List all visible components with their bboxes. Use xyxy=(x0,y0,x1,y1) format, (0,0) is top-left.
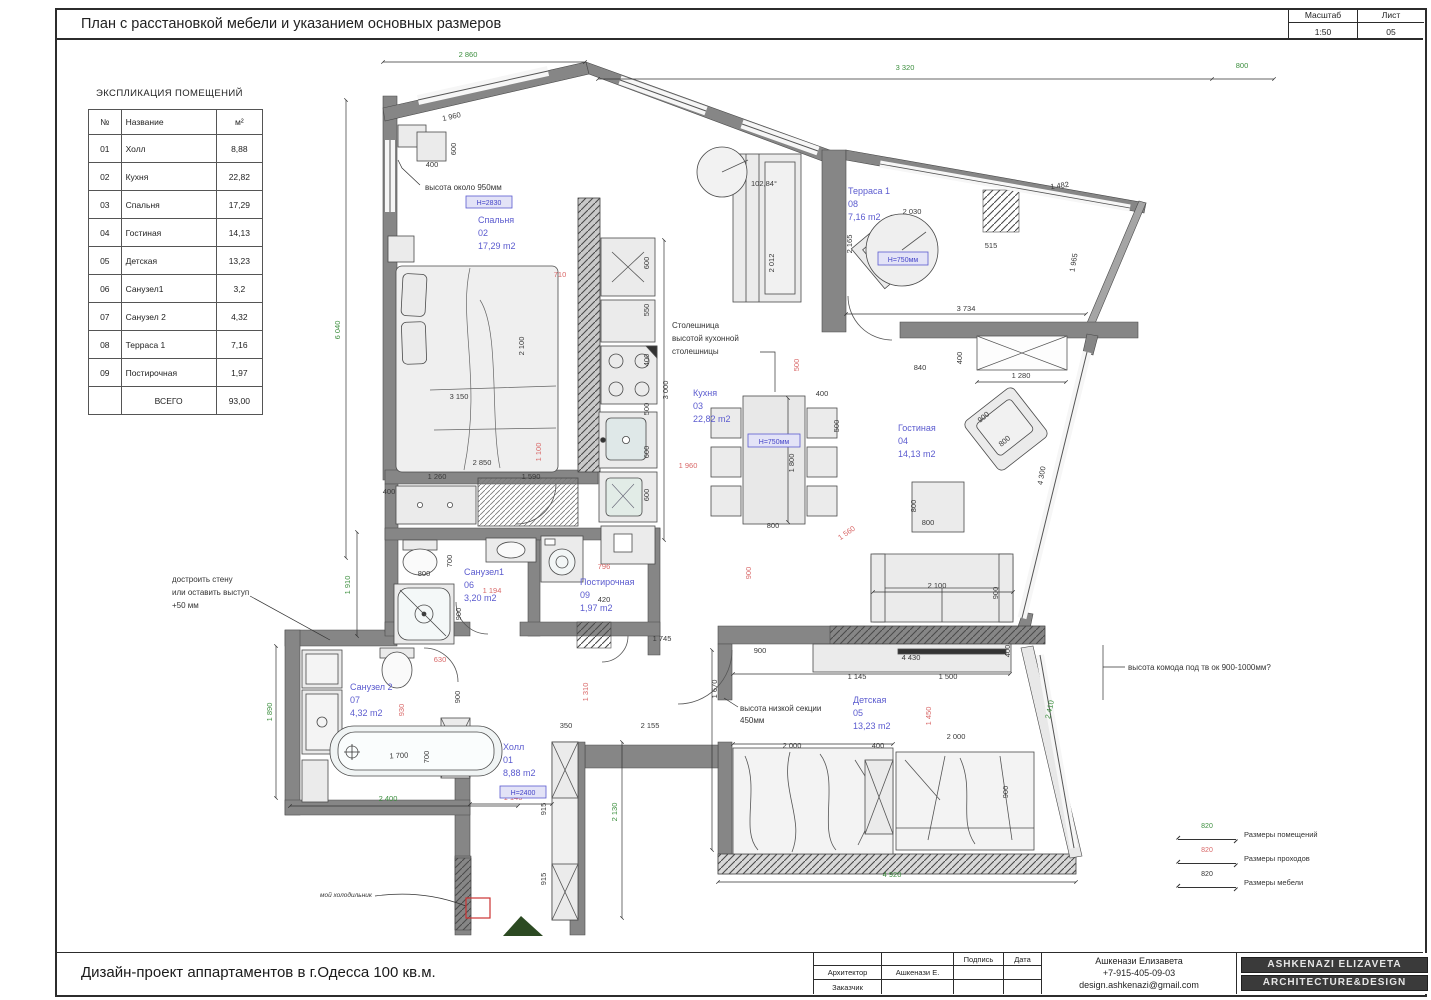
total-value: 93,00 xyxy=(216,387,262,415)
dimension-label: 6 040 xyxy=(333,321,342,340)
room-number: 08 xyxy=(89,331,122,359)
drawing-sheet: 2 8603 3208006 0401 9101 8902 4002 1304 … xyxy=(0,0,1431,1000)
col-name: Название xyxy=(121,110,216,135)
svg-text:8,88 m2: 8,88 m2 xyxy=(503,768,536,778)
sheet-title: План с расстановкой мебели и указанием о… xyxy=(81,16,501,32)
room-name: Терраса 1 xyxy=(121,331,216,359)
room-name: Детская xyxy=(121,247,216,275)
children-furniture xyxy=(733,748,1034,854)
svg-text:17,29 m2: 17,29 m2 xyxy=(478,241,516,251)
dimension-label: 400 xyxy=(955,352,964,365)
dimension-label: 2 030 xyxy=(903,207,922,216)
table-row: 05 Детская 13,23 xyxy=(89,247,263,275)
dimension-label: 800 xyxy=(418,569,431,578)
table-row: 07 Санузел 2 4,32 xyxy=(89,303,263,331)
table-row: 01 Холл 8,88 xyxy=(89,135,263,163)
dimension-label: 1 260 xyxy=(428,472,447,481)
dimension-label: 500 xyxy=(792,359,801,372)
dimension-label: 4 920 xyxy=(883,870,902,879)
svg-text:09: 09 xyxy=(580,590,590,600)
room-label-terrace: Терраса 1 08 7,16 m2 xyxy=(848,186,890,222)
dimension-label: 630 xyxy=(434,655,447,664)
annotation-tv: высота комода под тв ок 900-1000мм? xyxy=(1128,663,1271,672)
dimension-label: 700 xyxy=(422,751,431,764)
dimension-label: 900 xyxy=(453,691,462,704)
svg-text:Санузел 2: Санузел 2 xyxy=(350,682,393,692)
dimension-label: 1 450 xyxy=(924,707,933,726)
svg-text:08: 08 xyxy=(848,199,858,209)
svg-text:Терраса 1: Терраса 1 xyxy=(848,186,890,196)
dimension-label: 350 xyxy=(560,721,573,730)
dimension-label: 1 745 xyxy=(653,634,672,643)
project-title: Дизайн-проект аппартаментов в г.Одесса 1… xyxy=(81,964,436,981)
table-row: 09 Постирочная 1,97 xyxy=(89,359,263,387)
annotation-countertop: Столешница высотой кухонной столешницы xyxy=(672,321,741,356)
svg-text:Н=2400: Н=2400 xyxy=(511,790,536,797)
room-number: 02 xyxy=(89,163,122,191)
dimension-label: 3 000 xyxy=(661,381,670,400)
dimension-label: 2 400 xyxy=(379,794,398,803)
legend-line-green: 820 xyxy=(1178,828,1236,840)
room-label-living: Гостиная 04 14,13 m2 xyxy=(898,423,936,459)
dimension-label: 2 100 xyxy=(517,337,526,356)
dimension-label: 1 560 xyxy=(836,524,857,542)
explication-panel: ЭКСПЛИКАЦИЯ ПОМЕЩЕНИЙ № Название м² 01 Х… xyxy=(88,88,273,415)
room-label-bedroom: Н=2830 Спальня 02 17,29 m2 xyxy=(466,196,516,251)
dimension-label: 500 xyxy=(642,403,651,416)
scale-box: Масштаб Лист 1:50 05 xyxy=(1288,8,1423,40)
annotation-fridge: мой холодильник xyxy=(320,891,373,899)
room-label-bath1: Санузел1 06 3,20 m2 xyxy=(464,567,504,603)
date-label: Дата xyxy=(1004,953,1042,966)
terrace-furniture xyxy=(851,214,938,289)
col-number: № xyxy=(89,110,122,135)
scale-value: 1:50 xyxy=(1289,23,1357,40)
table-row: 04 Гостиная 14,13 xyxy=(89,219,263,247)
room-area: 8,88 xyxy=(216,135,262,163)
svg-text:Постирочная: Постирочная xyxy=(580,577,635,587)
dimension-label: 4 300 xyxy=(1035,466,1047,486)
room-number: 09 xyxy=(89,359,122,387)
dimension-label: 840 xyxy=(914,363,927,372)
dimension-label: 1 280 xyxy=(1012,371,1031,380)
dimension-label: 2 130 xyxy=(610,803,619,822)
room-area: 3,2 xyxy=(216,275,262,303)
room-name: Санузел 2 xyxy=(121,303,216,331)
contact-name: Ашкенази Елизавета xyxy=(1042,955,1236,967)
room-area: 17,29 xyxy=(216,191,262,219)
room-number: 04 xyxy=(89,219,122,247)
table-row: 03 Спальня 17,29 xyxy=(89,191,263,219)
svg-text:03: 03 xyxy=(693,401,703,411)
dimension-label: 3 734 xyxy=(957,304,976,313)
annotation-low-section: высота низкой секции 450мм xyxy=(740,704,824,725)
dimension-label: 900 xyxy=(1001,786,1010,799)
explication-table: № Название м² 01 Холл 8,88 02 Кухня xyxy=(88,109,263,415)
svg-text:01: 01 xyxy=(503,755,513,765)
table-total-row: ВСЕГО 93,00 xyxy=(89,387,263,415)
svg-text:1,97 m2: 1,97 m2 xyxy=(580,603,613,613)
svg-text:Н=750мм: Н=750мм xyxy=(759,439,790,446)
room-area: 13,23 xyxy=(216,247,262,275)
svg-text:3,20 m2: 3,20 m2 xyxy=(464,593,497,603)
svg-text:Н=750мм: Н=750мм xyxy=(888,257,919,264)
dimension-label: 1 700 xyxy=(389,751,408,761)
room-area: 1,97 xyxy=(216,359,262,387)
room-area: 4,32 xyxy=(216,303,262,331)
dimension-label: 400 xyxy=(872,741,885,750)
sheet-number: 05 xyxy=(1357,23,1424,40)
svg-text:05: 05 xyxy=(853,708,863,718)
room-number: 01 xyxy=(89,135,122,163)
sheet-label: Лист xyxy=(1357,8,1424,23)
scale-label: Масштаб xyxy=(1289,8,1357,23)
dimension-label: 550 xyxy=(642,304,651,317)
room-name: Спальня xyxy=(121,191,216,219)
dimension-label: 600 xyxy=(449,143,458,156)
dimension-label: 900 xyxy=(991,587,1000,600)
dimension-label: 1 310 xyxy=(581,683,590,702)
dimension-label: 3 320 xyxy=(896,63,915,72)
room-number: 03 xyxy=(89,191,122,219)
room-label-kitchen: Кухня 03 22,82 m2 xyxy=(693,388,731,424)
room-name: Гостиная xyxy=(121,219,216,247)
dimension-label: 400 xyxy=(383,487,396,496)
dimension-label: 1 960 xyxy=(441,110,461,123)
dimension-label: 1 910 xyxy=(343,576,352,595)
svg-text:7,16 m2: 7,16 m2 xyxy=(848,212,881,222)
dimension-label: 2 100 xyxy=(928,581,947,590)
explication-heading: ЭКСПЛИКАЦИЯ ПОМЕЩЕНИЙ xyxy=(96,88,273,99)
svg-text:13,23 m2: 13,23 m2 xyxy=(853,721,891,731)
svg-text:Санузел1: Санузел1 xyxy=(464,567,504,577)
contact-info: Ашкенази Елизавета +7-915-405-09-03 desi… xyxy=(1042,953,1237,994)
dimension-label: 2 000 xyxy=(783,741,802,750)
legend-passage-dims: 820 Размеры проходов xyxy=(1178,840,1403,864)
svg-text:Н=2830: Н=2830 xyxy=(477,200,502,207)
svg-text:14,13 m2: 14,13 m2 xyxy=(898,449,936,459)
brand-badge-name: ASHKENAZI ELIZAVETA xyxy=(1241,957,1428,973)
dimension-label: 796 xyxy=(598,562,611,571)
room-label-bath2: Санузел 2 07 4,32 m2 xyxy=(350,682,393,718)
dimension-label: 800 xyxy=(909,500,918,513)
legend-furniture-dims: 820 Размеры мебели xyxy=(1178,864,1403,888)
dimension-label: 400 xyxy=(426,160,439,169)
title-bar: План с расстановкой мебели и указанием о… xyxy=(55,8,1423,40)
signature-grid: Подпись Дата Архитектор Ашкенази Е. Зака… xyxy=(814,953,1042,994)
dimension-label: 1 960 xyxy=(679,461,698,470)
architect-name: Ашкенази Е. xyxy=(882,966,954,980)
kitchen-furniture xyxy=(599,238,657,564)
room-number: 07 xyxy=(89,303,122,331)
room-number: 06 xyxy=(89,275,122,303)
legend-room-dims: 820 Размеры помещений xyxy=(1178,816,1403,840)
room-name: Санузел1 xyxy=(121,275,216,303)
dimension-label: 710 xyxy=(554,270,567,279)
dimension-label: 4 430 xyxy=(902,653,921,662)
dimension-label: 1 145 xyxy=(848,672,867,681)
table-row: 02 Кухня 22,82 xyxy=(89,163,263,191)
dimension-label: 2 012 xyxy=(767,254,776,273)
dimension-label: 800 xyxy=(767,521,780,530)
brand-badges: ASHKENAZI ELIZAVETA ARCHITECTURE&DESIGN xyxy=(1237,953,1431,994)
table-row: 08 Терраса 1 7,16 xyxy=(89,331,263,359)
dimension-label: 3 150 xyxy=(450,392,469,401)
room-name: Постирочная xyxy=(121,359,216,387)
sign-label: Подпись xyxy=(954,953,1004,966)
contact-email: design.ashkenazi@gmail.com xyxy=(1042,979,1236,991)
legend-line-red: 820 xyxy=(1178,852,1236,864)
svg-text:06: 06 xyxy=(464,580,474,590)
room-name: Холл xyxy=(121,135,216,163)
svg-text:04: 04 xyxy=(898,436,908,446)
annotation-wall: достроить стену или оставить выступ +50 … xyxy=(172,575,251,610)
room-area: 14,13 xyxy=(216,219,262,247)
svg-text:Гостиная: Гостиная xyxy=(898,423,936,433)
room-area: 7,16 xyxy=(216,331,262,359)
dimension-label: 1 890 xyxy=(265,703,274,722)
dimension-label: 930 xyxy=(397,704,406,717)
table-header-row: № Название м² xyxy=(89,110,263,135)
dimension-label: 2 155 xyxy=(641,721,660,730)
room-name: Кухня xyxy=(121,163,216,191)
dimension-label: 1 100 xyxy=(534,443,543,462)
annotation-nightstand: высота около 950мм xyxy=(425,183,502,192)
wardrobe xyxy=(697,147,801,302)
total-label: ВСЕГО xyxy=(121,387,216,415)
legend-line-black: 820 xyxy=(1178,876,1236,888)
dimension-label: 1 965 xyxy=(1067,253,1079,273)
dimension-label: 600 xyxy=(642,446,651,459)
contact-phone: +7-915-405-09-03 xyxy=(1042,967,1236,979)
dimension-label: 1 670 xyxy=(710,680,719,699)
svg-text:Спальня: Спальня xyxy=(478,215,514,225)
dimension-label: 800 xyxy=(922,518,935,527)
room-number: 05 xyxy=(89,247,122,275)
architect-label: Архитектор xyxy=(814,966,882,980)
dimension-label: 600 xyxy=(642,489,651,502)
dimension-label: 900 xyxy=(744,567,753,580)
table-row: 06 Санузел1 3,2 xyxy=(89,275,263,303)
dimension-label: 102,84° xyxy=(751,179,777,188)
dimension-label: 2 000 xyxy=(947,732,966,741)
dimension-label: 400 xyxy=(816,389,829,398)
dimension-legend: 820 Размеры помещений 820 Размеры проход… xyxy=(1178,816,1403,888)
dimension-label: 2 860 xyxy=(459,50,478,59)
dimension-label: 400 xyxy=(642,354,651,367)
bath2-fixtures xyxy=(302,648,502,802)
dimension-label: 915 xyxy=(539,873,548,886)
dimension-label: 500 xyxy=(832,420,841,433)
footer-bar: Дизайн-проект аппартаментов в г.Одесса 1… xyxy=(55,952,1423,993)
dimension-label: 515 xyxy=(985,241,998,250)
svg-text:07: 07 xyxy=(350,695,360,705)
room-label-children: Детская 05 13,23 m2 xyxy=(853,695,891,731)
dimension-label: 900 xyxy=(754,646,767,655)
dimension-label: 1 800 xyxy=(787,454,796,473)
col-area: м² xyxy=(216,110,262,135)
dimension-label: 700 xyxy=(445,555,454,568)
room-label-hall: Холл 01 8,88 m2 Н=2400 xyxy=(500,742,546,798)
brand-badge-tagline: ARCHITECTURE&DESIGN xyxy=(1241,975,1428,991)
entrance-door xyxy=(503,916,543,936)
dimension-label: 400 xyxy=(1003,645,1012,658)
dimension-label: 900 xyxy=(454,608,463,621)
dimension-label: 915 xyxy=(539,803,548,816)
dimension-label: 600 xyxy=(642,257,651,270)
dimension-label: 2 850 xyxy=(473,458,492,467)
svg-text:4,32 m2: 4,32 m2 xyxy=(350,708,383,718)
svg-text:Детская: Детская xyxy=(853,695,886,705)
svg-text:Кухня: Кухня xyxy=(693,388,717,398)
svg-text:22,82 m2: 22,82 m2 xyxy=(693,414,731,424)
svg-text:02: 02 xyxy=(478,228,488,238)
dimension-label: 800 xyxy=(1236,61,1249,70)
client-label: Заказчик xyxy=(814,980,882,994)
dimension-label: 1 500 xyxy=(939,672,958,681)
dimension-label: 2 165 xyxy=(845,235,854,254)
title-block: Подпись Дата Архитектор Ашкенази Е. Зака… xyxy=(813,953,1431,994)
dimension-label: 1 590 xyxy=(522,472,541,481)
svg-text:Холл: Холл xyxy=(503,742,524,752)
room-area: 22,82 xyxy=(216,163,262,191)
